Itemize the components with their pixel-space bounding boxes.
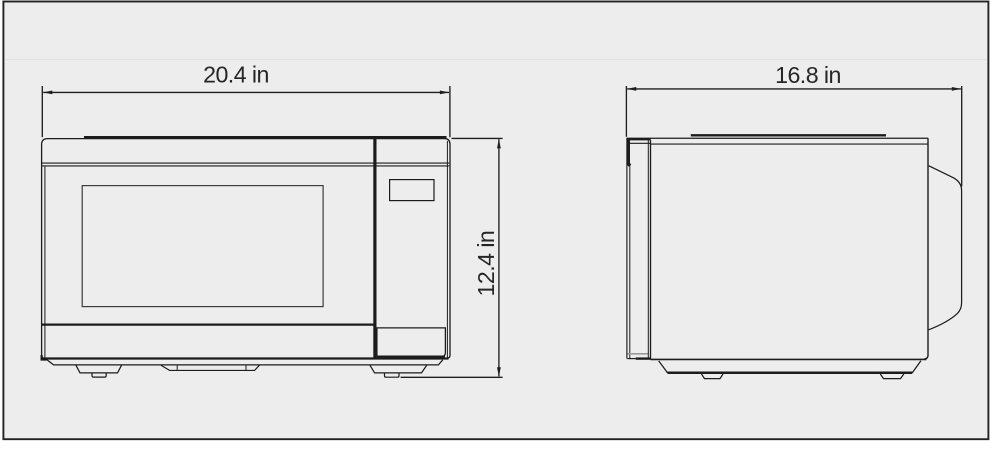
svg-text:12.4 in: 12.4 in [473, 231, 499, 297]
svg-text:20.4 in: 20.4 in [203, 62, 269, 88]
svg-text:16.8 in: 16.8 in [775, 62, 841, 88]
